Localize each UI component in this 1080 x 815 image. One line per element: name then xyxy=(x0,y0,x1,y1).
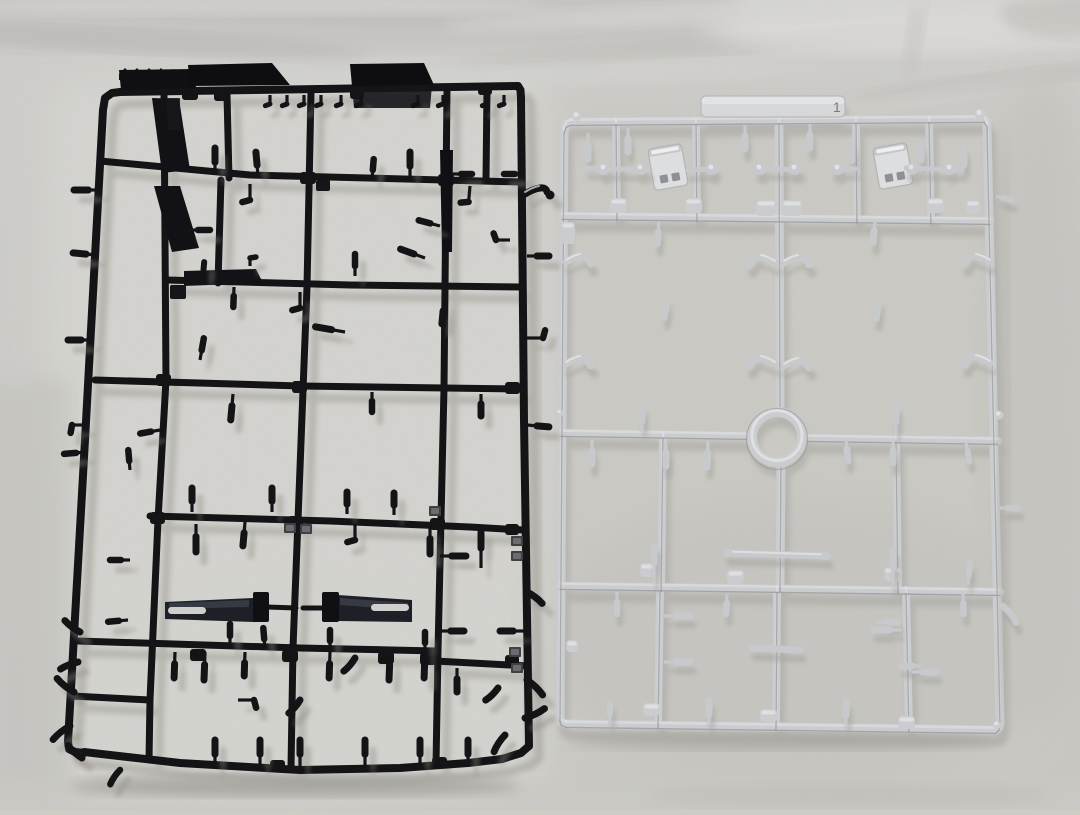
svg-text:1: 1 xyxy=(833,99,841,115)
